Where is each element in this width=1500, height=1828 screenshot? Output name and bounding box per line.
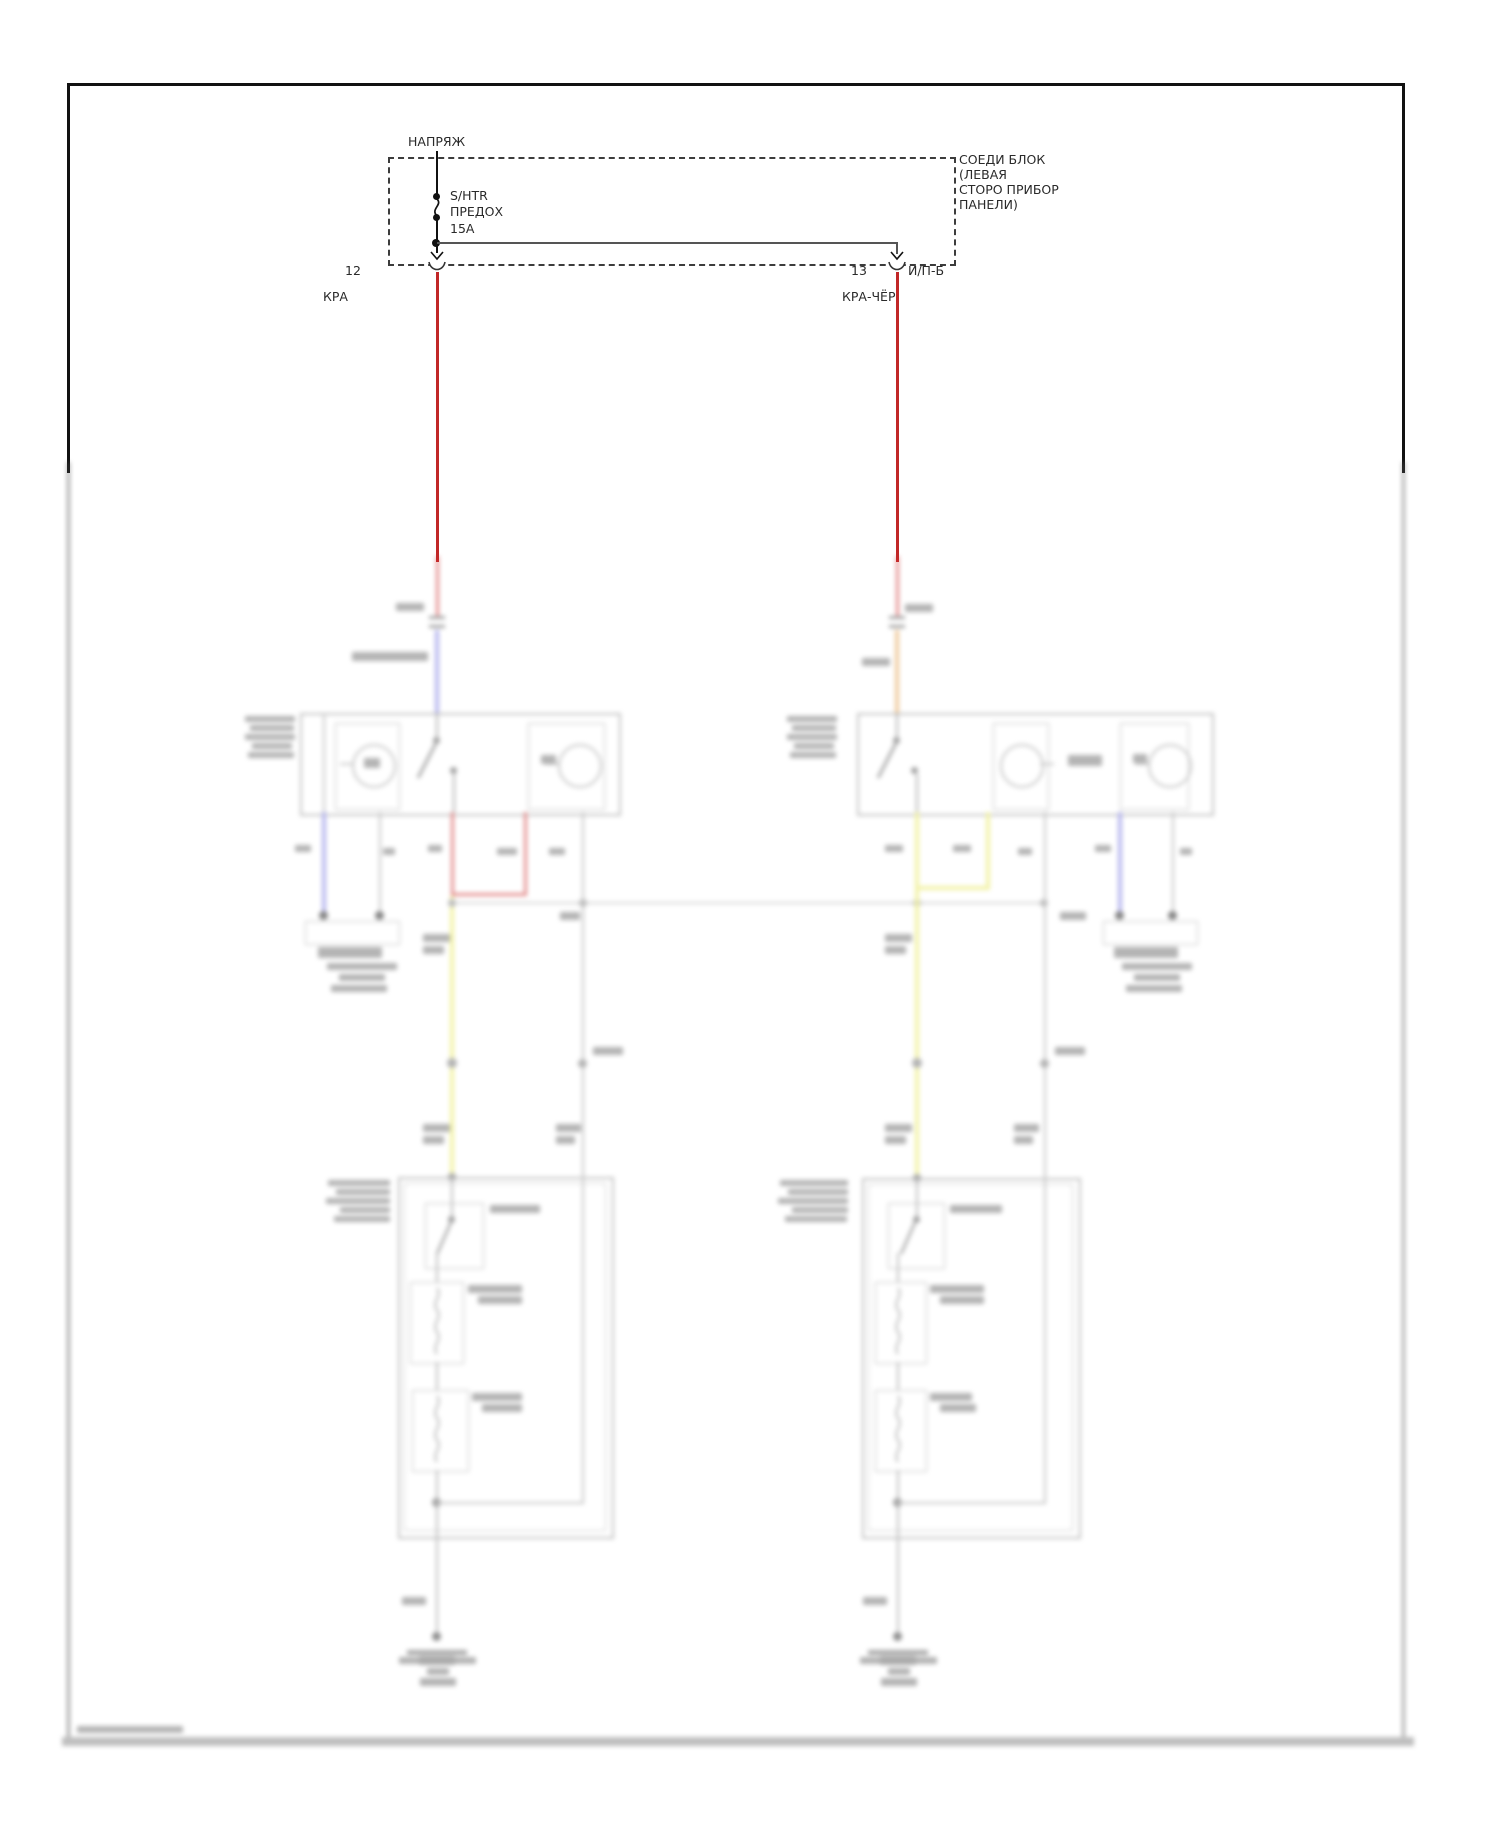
right-yellow-loop-leg2 xyxy=(986,812,990,890)
left-ground-tail xyxy=(427,1668,449,1675)
illegible-label xyxy=(334,1216,390,1222)
illegible-pin-label xyxy=(1095,845,1111,852)
illegible-label xyxy=(885,946,906,954)
right-switch-arm-icon xyxy=(870,738,920,783)
left-relay-coil-icon xyxy=(558,744,602,788)
illegible-label xyxy=(930,1393,972,1401)
left-box-partition xyxy=(323,713,325,812)
illegible-pin-label xyxy=(953,845,971,852)
right-relay-coil-icon xyxy=(1000,744,1044,788)
right-heater-element2-icon xyxy=(890,1396,906,1464)
left-heater-wire-c xyxy=(436,1362,438,1390)
illegible-label xyxy=(402,1597,426,1605)
illegible-label xyxy=(1134,974,1180,981)
left-heater-element1-icon xyxy=(429,1288,445,1356)
left-red-loop-leg1 xyxy=(451,812,454,896)
illegible-label xyxy=(352,652,428,661)
right-yellow-loop-bottom xyxy=(915,886,990,890)
illegible-label xyxy=(340,1207,390,1213)
illegible-label xyxy=(331,985,387,992)
illegible-pin-label xyxy=(295,845,311,852)
left-switch-contact xyxy=(450,767,457,774)
right-heater-return-wire xyxy=(897,1470,899,1637)
footer-text-smudge xyxy=(77,1726,183,1733)
illegible-label xyxy=(541,755,556,764)
illegible-label xyxy=(788,1189,848,1195)
illegible-label xyxy=(780,1180,848,1186)
blue-wire-left xyxy=(435,630,439,715)
illegible-label xyxy=(1060,912,1086,920)
page-border-left-faded xyxy=(67,462,70,1743)
illegible-label xyxy=(1068,755,1102,766)
illegible-label xyxy=(326,1198,390,1204)
illegible-label xyxy=(472,1393,522,1401)
illegible-pin-label xyxy=(428,845,442,852)
illegible-label xyxy=(482,1404,522,1412)
right-lamp-terminal1 xyxy=(1115,911,1124,920)
illegible-label xyxy=(940,1296,984,1304)
blurred-diagram-region xyxy=(0,0,1500,1828)
inline-connector-right-tick2 xyxy=(889,625,905,628)
right-splice2 xyxy=(1040,1059,1049,1068)
illegible-label xyxy=(794,743,834,749)
crossover-junction2 xyxy=(579,899,587,907)
red-wire-right-faded xyxy=(896,556,899,616)
right-lamp-blue-wire xyxy=(1118,812,1122,915)
left-red-loop-bottom xyxy=(451,893,527,896)
illegible-label xyxy=(490,1205,540,1213)
illegible-label xyxy=(468,1285,522,1293)
left-ground-terminal xyxy=(432,1632,441,1641)
right-switch-input-stub xyxy=(896,713,898,740)
illegible-label xyxy=(1133,754,1147,763)
illegible-pin-label xyxy=(383,848,395,855)
right-heater-wire-c xyxy=(897,1362,899,1390)
illegible-label xyxy=(423,1136,444,1144)
left-ground-wing2 xyxy=(452,1657,476,1664)
right-indicator-lamp-icon xyxy=(1148,744,1192,788)
right-ground-terminal xyxy=(893,1632,902,1641)
illegible-label xyxy=(1055,1047,1085,1055)
illegible-label xyxy=(423,1124,450,1132)
illegible-label xyxy=(792,1207,848,1213)
illegible-pin-label xyxy=(497,848,517,855)
left-heater-element2-icon xyxy=(429,1396,445,1464)
left-ground-icon xyxy=(407,1650,467,1655)
illegible-label xyxy=(420,1678,456,1686)
illegible-label xyxy=(593,1047,623,1055)
illegible-label xyxy=(863,1597,887,1605)
illegible-label xyxy=(318,947,382,958)
illegible-label xyxy=(327,963,397,970)
illegible-label xyxy=(423,946,444,954)
illegible-label xyxy=(248,752,294,758)
illegible-label xyxy=(1122,963,1192,970)
illegible-label xyxy=(787,734,837,740)
right-ground-icon xyxy=(868,1650,928,1655)
illegible-label xyxy=(364,758,380,768)
orange-wire-right xyxy=(895,630,899,715)
illegible-label xyxy=(556,1124,581,1132)
left-heater-wire-b xyxy=(436,1253,438,1282)
illegible-label xyxy=(785,1216,847,1222)
left-lamp-blue-wire xyxy=(322,812,326,915)
illegible-pin-label xyxy=(549,848,565,855)
illegible-label xyxy=(556,1136,575,1144)
right-yellow-wire xyxy=(915,890,919,1179)
left-heater-return-wire xyxy=(436,1470,438,1637)
illegible-label xyxy=(478,1296,522,1304)
right-indicator-tick xyxy=(1135,763,1149,765)
wiring-diagram-canvas: НАПРЯЖ СОЕДИ БЛОК (ЛЕВАЯ СТОРО ПРИБОР ПА… xyxy=(0,0,1500,1828)
illegible-label xyxy=(245,734,295,740)
right-heater-wire-b xyxy=(897,1253,899,1282)
right-switch-contact xyxy=(911,767,918,774)
right-ground-wing2 xyxy=(913,1657,937,1664)
left-lamp-gray-wire xyxy=(379,812,381,915)
right-lamp-gray-wire xyxy=(1172,812,1174,915)
left-red-loop-leg2 xyxy=(524,812,527,896)
illegible-label xyxy=(336,1189,390,1195)
illegible-label xyxy=(423,934,450,942)
left-illumination-component xyxy=(305,921,400,945)
illegible-label xyxy=(885,1124,912,1132)
illegible-label xyxy=(1114,947,1178,958)
right-splice1 xyxy=(912,1058,922,1068)
illegible-pin-label xyxy=(885,845,903,852)
page-border-bottom-faded xyxy=(62,1737,1414,1746)
illegible-label xyxy=(250,725,294,731)
right-heater-element1-icon xyxy=(890,1288,906,1356)
right-yellow-loop-leg1 xyxy=(915,812,919,890)
right-relay-tick xyxy=(1040,763,1054,765)
crossover-wire xyxy=(452,902,1045,904)
left-lamp-terminal1 xyxy=(319,911,328,920)
illegible-label xyxy=(245,716,295,722)
illegible-label xyxy=(885,1136,906,1144)
crossover-junction1 xyxy=(448,899,456,907)
illegible-label xyxy=(862,658,890,666)
illegible-label xyxy=(252,743,292,749)
right-lamp-terminal2 xyxy=(1168,911,1177,920)
illegible-label xyxy=(1014,1136,1033,1144)
left-splice2 xyxy=(578,1059,587,1068)
inline-connector-left-tick2 xyxy=(429,625,445,628)
illegible-label xyxy=(940,1404,976,1412)
left-lamp-terminal2 xyxy=(375,911,384,920)
left-indicator-tick xyxy=(340,763,353,765)
red-wire-left-faded xyxy=(436,556,439,616)
page-border-right-faded xyxy=(1402,462,1405,1743)
inline-connector-right-tick1 xyxy=(889,616,905,619)
left-thermo-switch-arm-icon xyxy=(428,1214,458,1259)
illegible-label xyxy=(905,604,933,612)
left-switch-input-stub xyxy=(436,713,438,740)
illegible-label xyxy=(787,716,837,722)
left-splice1 xyxy=(447,1058,457,1068)
left-return-horizontal xyxy=(436,1502,584,1504)
illegible-label xyxy=(778,1198,848,1204)
right-illumination-component xyxy=(1103,921,1198,945)
left-ground-mid xyxy=(419,1656,455,1665)
illegible-label xyxy=(328,1180,390,1186)
illegible-label xyxy=(792,725,836,731)
left-switch-output-stub xyxy=(453,774,455,812)
illegible-label xyxy=(790,752,836,758)
illegible-label xyxy=(930,1285,984,1293)
right-switch-output-stub xyxy=(916,774,918,812)
right-ground-tail xyxy=(888,1668,910,1675)
illegible-label xyxy=(560,912,580,920)
illegible-label xyxy=(396,603,424,611)
illegible-label xyxy=(1014,1124,1039,1132)
illegible-label xyxy=(1126,985,1182,992)
left-yellow-wire xyxy=(450,896,454,1179)
illegible-label xyxy=(881,1678,917,1686)
right-ground-mid xyxy=(880,1656,916,1665)
illegible-label xyxy=(339,974,385,981)
right-return-horizontal xyxy=(897,1502,1046,1504)
illegible-label xyxy=(950,1205,1002,1213)
inline-connector-left-tick1 xyxy=(429,616,445,619)
illegible-label xyxy=(885,934,912,942)
illegible-pin-label xyxy=(1180,848,1192,855)
illegible-pin-label xyxy=(1018,848,1032,855)
